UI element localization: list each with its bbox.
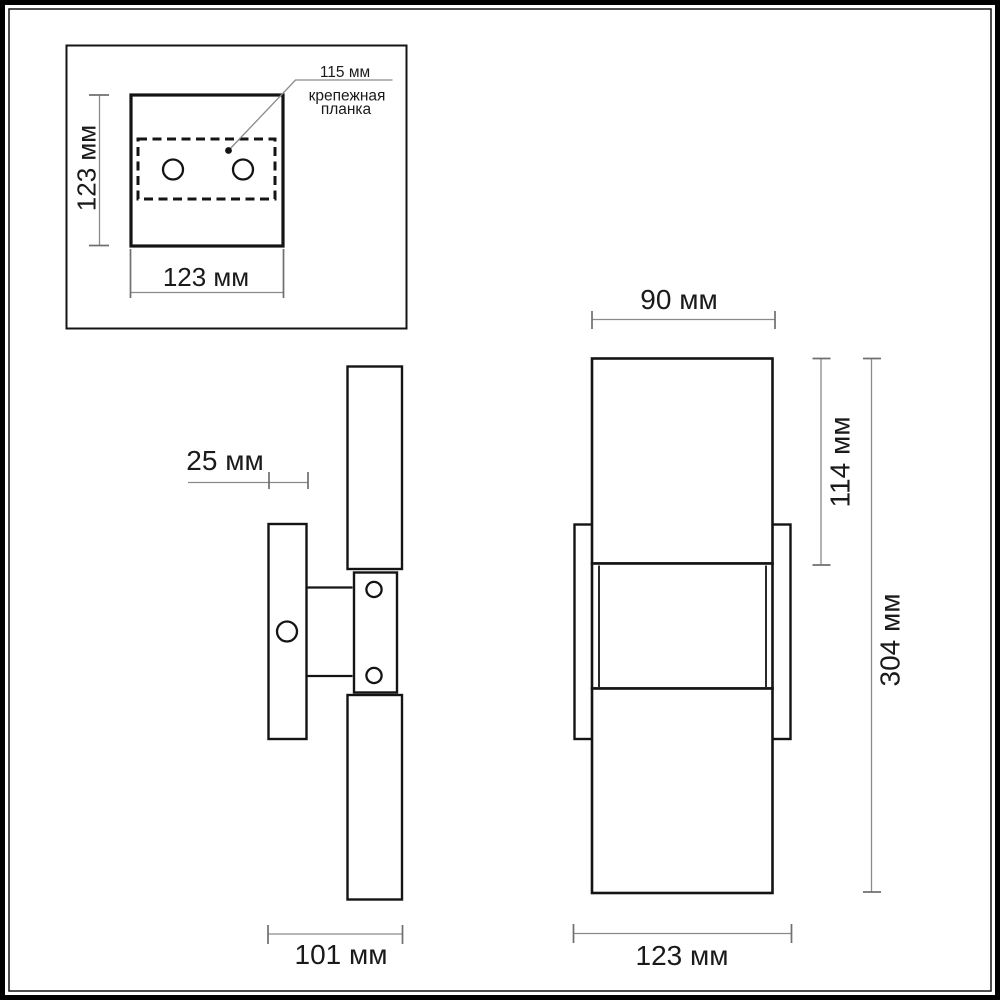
side-plate-hole — [277, 622, 297, 642]
front-total-height-label: 304 мм — [875, 594, 906, 687]
inset-width-dim-label: 123 мм — [163, 262, 249, 292]
callout-dot — [225, 147, 232, 154]
inset-height-dim-label: 123 мм — [72, 125, 102, 211]
screw-hole-right — [233, 160, 253, 180]
side-total-depth-dimension: 101 мм — [268, 925, 403, 970]
front-tube-width-dimension: 90 мм — [592, 284, 775, 329]
front-view: 90 мм 114 мм 304 мм 123 мм — [574, 284, 906, 971]
inset-width-dimension: 123 мм — [131, 249, 285, 298]
screw-hole-left — [163, 160, 183, 180]
front-tube-width-label: 90 мм — [640, 284, 717, 315]
side-plate-depth-label: 25 мм — [186, 445, 263, 476]
side-total-depth-label: 101 мм — [295, 939, 388, 970]
side-bracket-screw-bottom — [366, 668, 381, 683]
side-upper-tube — [348, 367, 403, 570]
side-view: 25 мм 101 мм — [186, 367, 402, 971]
dimension-drawing-canvas: 115 мм крепежная планка 123 мм 123 мм — [0, 0, 1000, 1000]
side-bracket-screw-top — [366, 582, 381, 597]
hole-spacing-dim-label: 115 мм — [320, 64, 370, 81]
mounting-bar-dashed-outline — [138, 139, 275, 199]
inset-height-dimension: 123 мм — [72, 95, 110, 246]
front-total-height-dimension: 304 мм — [863, 359, 906, 893]
front-middle-housing — [592, 564, 773, 689]
front-upper-tube — [592, 359, 773, 564]
side-lower-tube — [348, 695, 403, 900]
plate-callout-line2: планка — [321, 101, 372, 118]
front-upper-height-dimension: 114 мм — [813, 359, 856, 566]
front-upper-height-label: 114 мм — [825, 417, 856, 508]
front-plate-width-label: 123 мм — [636, 940, 729, 971]
side-plate-depth-dimension: 25 мм — [186, 445, 308, 489]
mounting-inset-panel: 115 мм крепежная планка 123 мм 123 мм — [67, 46, 407, 329]
front-lower-tube — [592, 689, 773, 894]
front-plate-width-dimension: 123 мм — [574, 924, 792, 971]
